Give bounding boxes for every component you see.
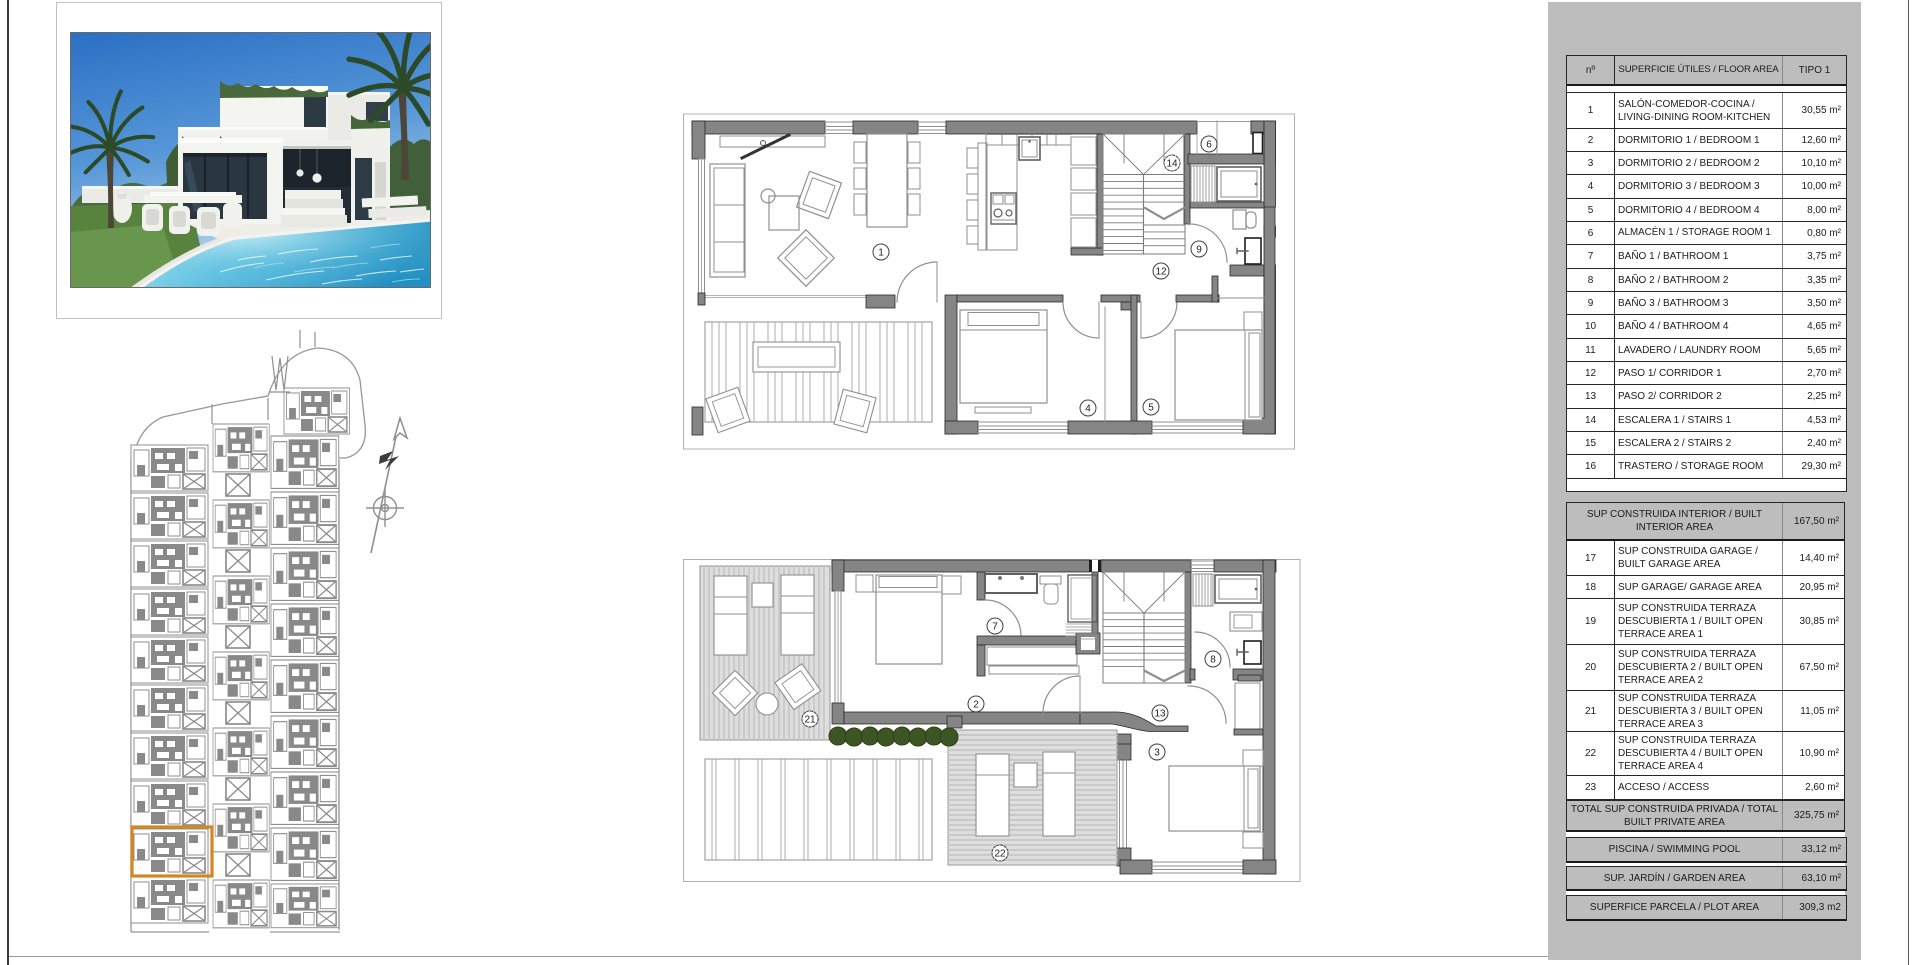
svg-text:22: 22 xyxy=(994,849,1006,860)
svg-text:21: 21 xyxy=(804,715,816,726)
svg-text:6: 6 xyxy=(1206,140,1212,151)
svg-text:4: 4 xyxy=(1085,404,1091,415)
svg-text:14: 14 xyxy=(1166,159,1178,170)
svg-text:12: 12 xyxy=(1155,267,1167,278)
svg-text:3: 3 xyxy=(1154,748,1160,759)
svg-text:1: 1 xyxy=(878,248,884,259)
svg-text:13: 13 xyxy=(1154,709,1166,720)
svg-text:5: 5 xyxy=(1148,403,1154,414)
svg-text:8: 8 xyxy=(1210,655,1216,666)
svg-text:9: 9 xyxy=(1196,245,1202,256)
svg-text:2: 2 xyxy=(973,700,979,711)
svg-text:7: 7 xyxy=(992,622,998,633)
